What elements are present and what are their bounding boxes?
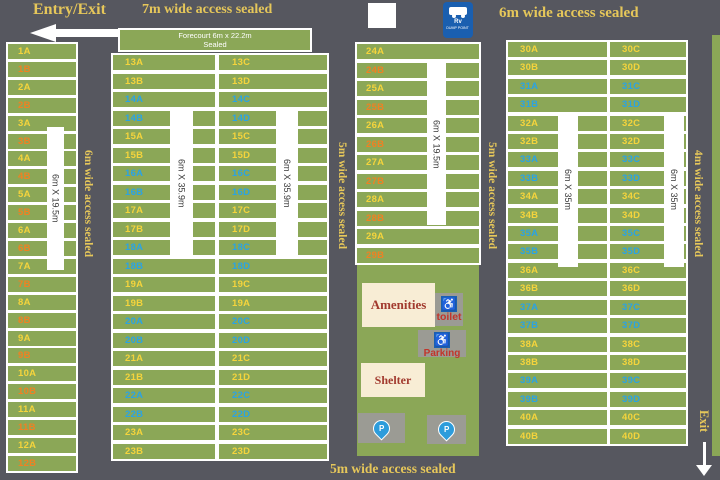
dimension-strip-right-right-label: 6m X 35m [669, 169, 679, 210]
building-box [368, 3, 396, 28]
exit-label: Exit [696, 410, 711, 432]
site-17B: 17B [113, 222, 215, 237]
site-4A: 4A [8, 151, 76, 166]
site-17A: 17A [113, 203, 215, 218]
site-5A: 5A [8, 187, 76, 202]
top-center-road-label: 7m wide access sealed [142, 2, 272, 18]
site-column-1-12: 1A1B2A2B3A3B4A4B5A5B6A6B7A7B8A8B9A9B10A1… [6, 42, 78, 473]
site-8A: 8A [8, 295, 76, 310]
site-30C: 30C [610, 42, 686, 57]
site-15A: 15A [113, 129, 215, 144]
dimension-strip-middle: 6m X 19.5m [427, 63, 446, 225]
caravan-park-map: Entry/Exit 7m wide access sealed 6m wide… [0, 0, 720, 480]
site-17C: 17C [219, 203, 327, 218]
right-road-label: 4m wide access sealed [692, 150, 704, 257]
site-18A: 18A [113, 240, 215, 255]
exit-arrow-head [696, 465, 712, 476]
toilet-box: ♿ toilet [435, 293, 463, 326]
site-23C: 23C [219, 425, 327, 440]
site-21C: 21C [219, 351, 327, 366]
site-6A: 6A [8, 223, 76, 238]
site-37C: 37C [610, 300, 686, 315]
site-29B: 29B [357, 248, 479, 263]
site-21B: 21B [113, 370, 215, 385]
parking-lot-right: P [427, 415, 466, 444]
site-27A: 27A [357, 155, 479, 170]
site-16B: 16B [113, 185, 215, 200]
site-21D: 21D [219, 370, 327, 385]
site-22D: 22D [219, 407, 327, 422]
dimension-strip-right-left: 6m X 35m [558, 113, 578, 267]
left-road-label: 6m wide access sealed [82, 150, 94, 257]
site-37B: 37B [508, 318, 607, 333]
site-15C: 15C [219, 129, 327, 144]
site-31A: 31A [508, 79, 607, 94]
entry-exit-label: Entry/Exit [33, 1, 106, 19]
dimension-strip-block2-left-label: 6m X 35.9m [177, 159, 187, 208]
site-39A: 39A [508, 373, 607, 388]
site-20D: 20D [219, 333, 327, 348]
site-column-24-29: 24A24B25A25B26A26B27A27B28A28B29A29B [355, 42, 481, 265]
site-22C: 22C [219, 388, 327, 403]
bottom-road-label: 5m wide access sealed [330, 461, 456, 477]
site-19A: 19A [113, 277, 215, 292]
site-31C: 31C [610, 79, 686, 94]
site-40C: 40C [610, 410, 686, 425]
site-14B: 14B [113, 111, 215, 126]
parking-pin-icon: P [434, 417, 458, 441]
site-16D: 16D [219, 185, 327, 200]
site-38C: 38C [610, 337, 686, 352]
mid-right-road-label: 5m wide access sealed [486, 142, 498, 249]
dimension-strip-middle-label: 6m X 19.5m [432, 120, 442, 169]
site-23B: 23B [113, 444, 215, 459]
site-21A: 21A [113, 351, 215, 366]
site-23D: 23D [219, 444, 327, 459]
site-36B: 36B [508, 281, 607, 296]
site-31D: 31D [610, 97, 686, 112]
parking-box: ♿ Parking [418, 330, 466, 357]
site-18B: 18B [113, 259, 215, 274]
site-30B: 30B [508, 60, 607, 75]
site-30A: 30A [508, 42, 607, 57]
site-28B: 28B [357, 211, 479, 226]
site-column-13-23-ab: 13A13B14A14B15A15B16A16B17A17B18A18B19A1… [111, 53, 217, 461]
site-11B: 11B [8, 420, 76, 435]
site-14D: 14D [219, 111, 327, 126]
parking-lot-left: P [358, 413, 405, 443]
site-38D: 38D [610, 355, 686, 370]
dimension-strip-block2-left: 6m X 35.9m [170, 110, 193, 256]
site-12A: 12A [8, 438, 76, 453]
site-29A: 29A [357, 229, 479, 244]
site-20C: 20C [219, 314, 327, 329]
site-25A: 25A [357, 81, 479, 96]
rv-label: Rv [454, 19, 462, 25]
site-28A: 28A [357, 192, 479, 207]
site-38A: 38A [508, 337, 607, 352]
toilet-label: toilet [436, 312, 461, 323]
site-13A: 13A [113, 55, 215, 70]
site-39D: 39D [610, 392, 686, 407]
amenities-box: Amenities [362, 283, 435, 327]
site-5B: 5B [8, 205, 76, 220]
site-40B: 40B [508, 429, 607, 444]
parking-label: Parking [424, 348, 461, 359]
forecourt-line2: Sealed [203, 40, 226, 49]
site-10A: 10A [8, 366, 76, 381]
site-8B: 8B [8, 313, 76, 328]
site-7A: 7A [8, 259, 76, 274]
site-31B: 31B [508, 97, 607, 112]
shelter-box: Shelter [361, 363, 425, 397]
site-26A: 26A [357, 118, 479, 133]
site-12B: 12B [8, 456, 76, 471]
site-24B: 24B [357, 63, 479, 78]
site-1B: 1B [8, 62, 76, 77]
site-37A: 37A [508, 300, 607, 315]
site-17D: 17D [219, 222, 327, 237]
site-6B: 6B [8, 241, 76, 256]
parking-pin-letter: P [379, 424, 384, 433]
parking-pin-icon: P [369, 416, 393, 440]
site-37D: 37D [610, 318, 686, 333]
site-13C: 13C [219, 55, 327, 70]
exit-arrow-shaft [703, 442, 706, 466]
site-38B: 38B [508, 355, 607, 370]
site-18C: 18C [219, 240, 327, 255]
site-25B: 25B [357, 100, 479, 115]
site-40A: 40A [508, 410, 607, 425]
site-19A: 19A [219, 296, 327, 311]
site-19C: 19C [219, 277, 327, 292]
rv-dump-point-icon: Rv DUMP POINT [443, 2, 473, 38]
right-edge-green [712, 35, 720, 456]
wheelchair-toilet-icon: ♿ [441, 296, 457, 312]
site-36D: 36D [610, 281, 686, 296]
site-column-13-23-cd: 13C13D14C14D15C15D16C16D17C17D18C18D19C1… [217, 53, 329, 461]
site-22A: 22A [113, 388, 215, 403]
site-39C: 39C [610, 373, 686, 388]
site-2A: 2A [8, 80, 76, 95]
site-3B: 3B [8, 134, 76, 149]
site-23A: 23A [113, 425, 215, 440]
rv-truck-glyph [449, 7, 467, 15]
site-40D: 40D [610, 429, 686, 444]
forecourt-line1: Forecourt 6m x 22.2m [178, 31, 251, 40]
site-7B: 7B [8, 277, 76, 292]
site-9B: 9B [8, 348, 76, 363]
dimension-strip-right-left-label: 6m X 35m [563, 169, 573, 210]
site-14C: 14C [219, 92, 327, 107]
rv-dump-point-label: DUMP POINT [447, 25, 470, 30]
mid-left-road-label: 5m wide access sealed [336, 142, 348, 249]
dimension-strip-left: 6m X 19.5m [47, 127, 64, 270]
dimension-strip-block2-right: 6m X 35.9m [276, 110, 298, 256]
site-16A: 16A [113, 166, 215, 181]
site-39B: 39B [508, 392, 607, 407]
site-11A: 11A [8, 402, 76, 417]
site-20B: 20B [113, 333, 215, 348]
site-15D: 15D [219, 148, 327, 163]
site-20A: 20A [113, 314, 215, 329]
site-13B: 13B [113, 74, 215, 89]
site-16C: 16C [219, 166, 327, 181]
site-18D: 18D [219, 259, 327, 274]
exit-arrow-icon [696, 442, 712, 478]
site-13D: 13D [219, 74, 327, 89]
forecourt-box: Forecourt 6m x 22.2m Sealed [118, 28, 312, 52]
site-22B: 22B [113, 407, 215, 422]
dimension-strip-left-label: 6m X 19.5m [51, 174, 61, 223]
site-27B: 27B [357, 174, 479, 189]
site-15B: 15B [113, 148, 215, 163]
parking-pin-letter: P [444, 425, 449, 434]
top-right-road-label: 6m wide access sealed [499, 5, 639, 22]
site-3A: 3A [8, 116, 76, 131]
dimension-strip-right-right: 6m X 35m [664, 113, 684, 267]
site-2B: 2B [8, 98, 76, 113]
site-4B: 4B [8, 169, 76, 184]
dimension-strip-block2-right-label: 6m X 35.9m [282, 159, 292, 208]
wheelchair-parking-icon: ♿ [434, 332, 450, 348]
site-9A: 9A [8, 331, 76, 346]
site-10B: 10B [8, 384, 76, 399]
site-24A: 24A [357, 44, 479, 59]
site-1A: 1A [8, 44, 76, 59]
site-19B: 19B [113, 296, 215, 311]
site-30D: 30D [610, 60, 686, 75]
site-14A: 14A [113, 92, 215, 107]
site-26B: 26B [357, 137, 479, 152]
